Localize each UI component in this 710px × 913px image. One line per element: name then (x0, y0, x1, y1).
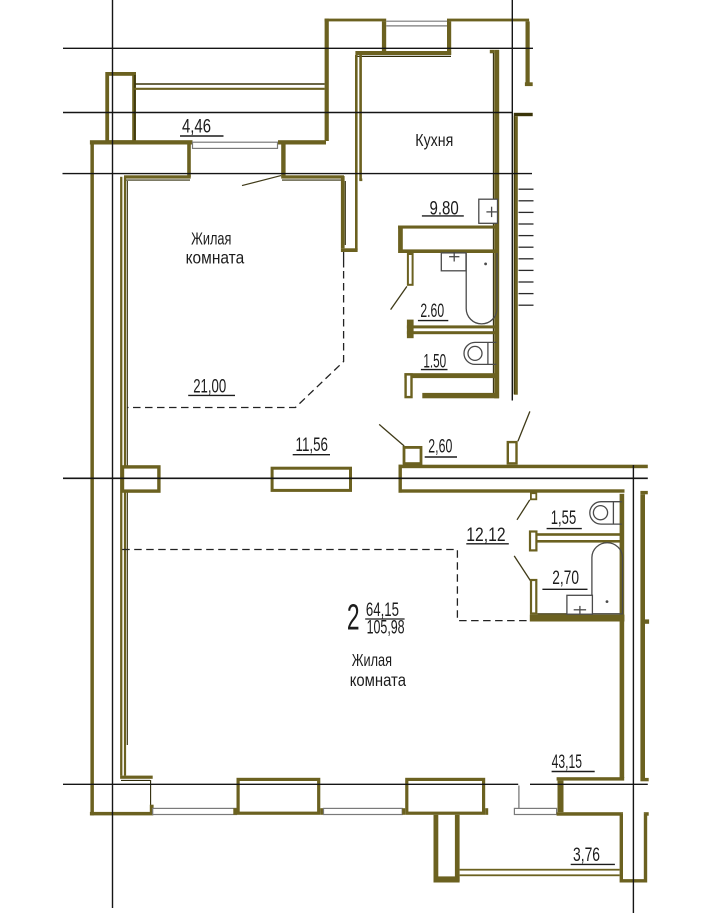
svg-text:2: 2 (347, 596, 360, 637)
svg-text:2.60: 2.60 (420, 300, 444, 322)
svg-text:21,00: 21,00 (193, 376, 226, 398)
svg-text:1,55: 1,55 (551, 507, 577, 529)
svg-text:3,76: 3,76 (573, 844, 600, 866)
svg-text:12,12: 12,12 (466, 524, 505, 546)
svg-text:43,15: 43,15 (552, 751, 582, 773)
svg-text:11,56: 11,56 (296, 434, 329, 456)
svg-text:4,46: 4,46 (182, 116, 211, 138)
svg-text:Жилая: Жилая (191, 228, 231, 248)
svg-text:комната: комната (186, 248, 245, 268)
svg-text:Жилая: Жилая (352, 650, 392, 670)
svg-text:2,60: 2,60 (428, 436, 452, 458)
svg-text:105,98: 105,98 (367, 617, 405, 639)
svg-text:Кухня: Кухня (415, 130, 453, 150)
svg-text:2,70: 2,70 (552, 567, 579, 589)
svg-text:комната: комната (350, 670, 407, 690)
